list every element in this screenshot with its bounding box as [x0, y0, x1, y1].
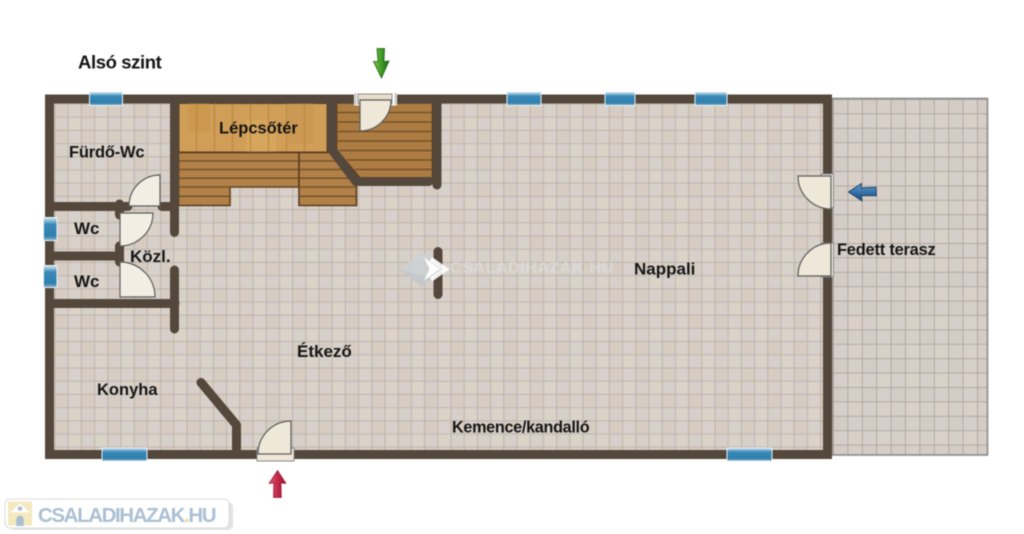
svg-text:CSALADIHAZAK.HU: CSALADIHAZAK.HU	[450, 260, 614, 277]
svg-text:Lépcsőtér: Lépcsőtér	[219, 120, 298, 138]
svg-text:Konyha: Konyha	[97, 381, 158, 399]
svg-text:Kemence/kandalló: Kemence/kandalló	[452, 419, 590, 437]
svg-text:CSALADIHAZAK.HU: CSALADIHAZAK.HU	[38, 504, 216, 527]
svg-text:Közl.: Közl.	[130, 247, 171, 266]
svg-text:Étkező: Étkező	[297, 342, 352, 361]
svg-text:Wc: Wc	[74, 219, 100, 238]
svg-text:Fedett terasz: Fedett terasz	[837, 241, 936, 259]
svg-text:Alsó szint: Alsó szint	[78, 52, 162, 73]
svg-text:Fürdő-Wc: Fürdő-Wc	[69, 144, 144, 162]
svg-text:Nappali: Nappali	[634, 260, 695, 279]
svg-text:Wc: Wc	[74, 272, 100, 291]
